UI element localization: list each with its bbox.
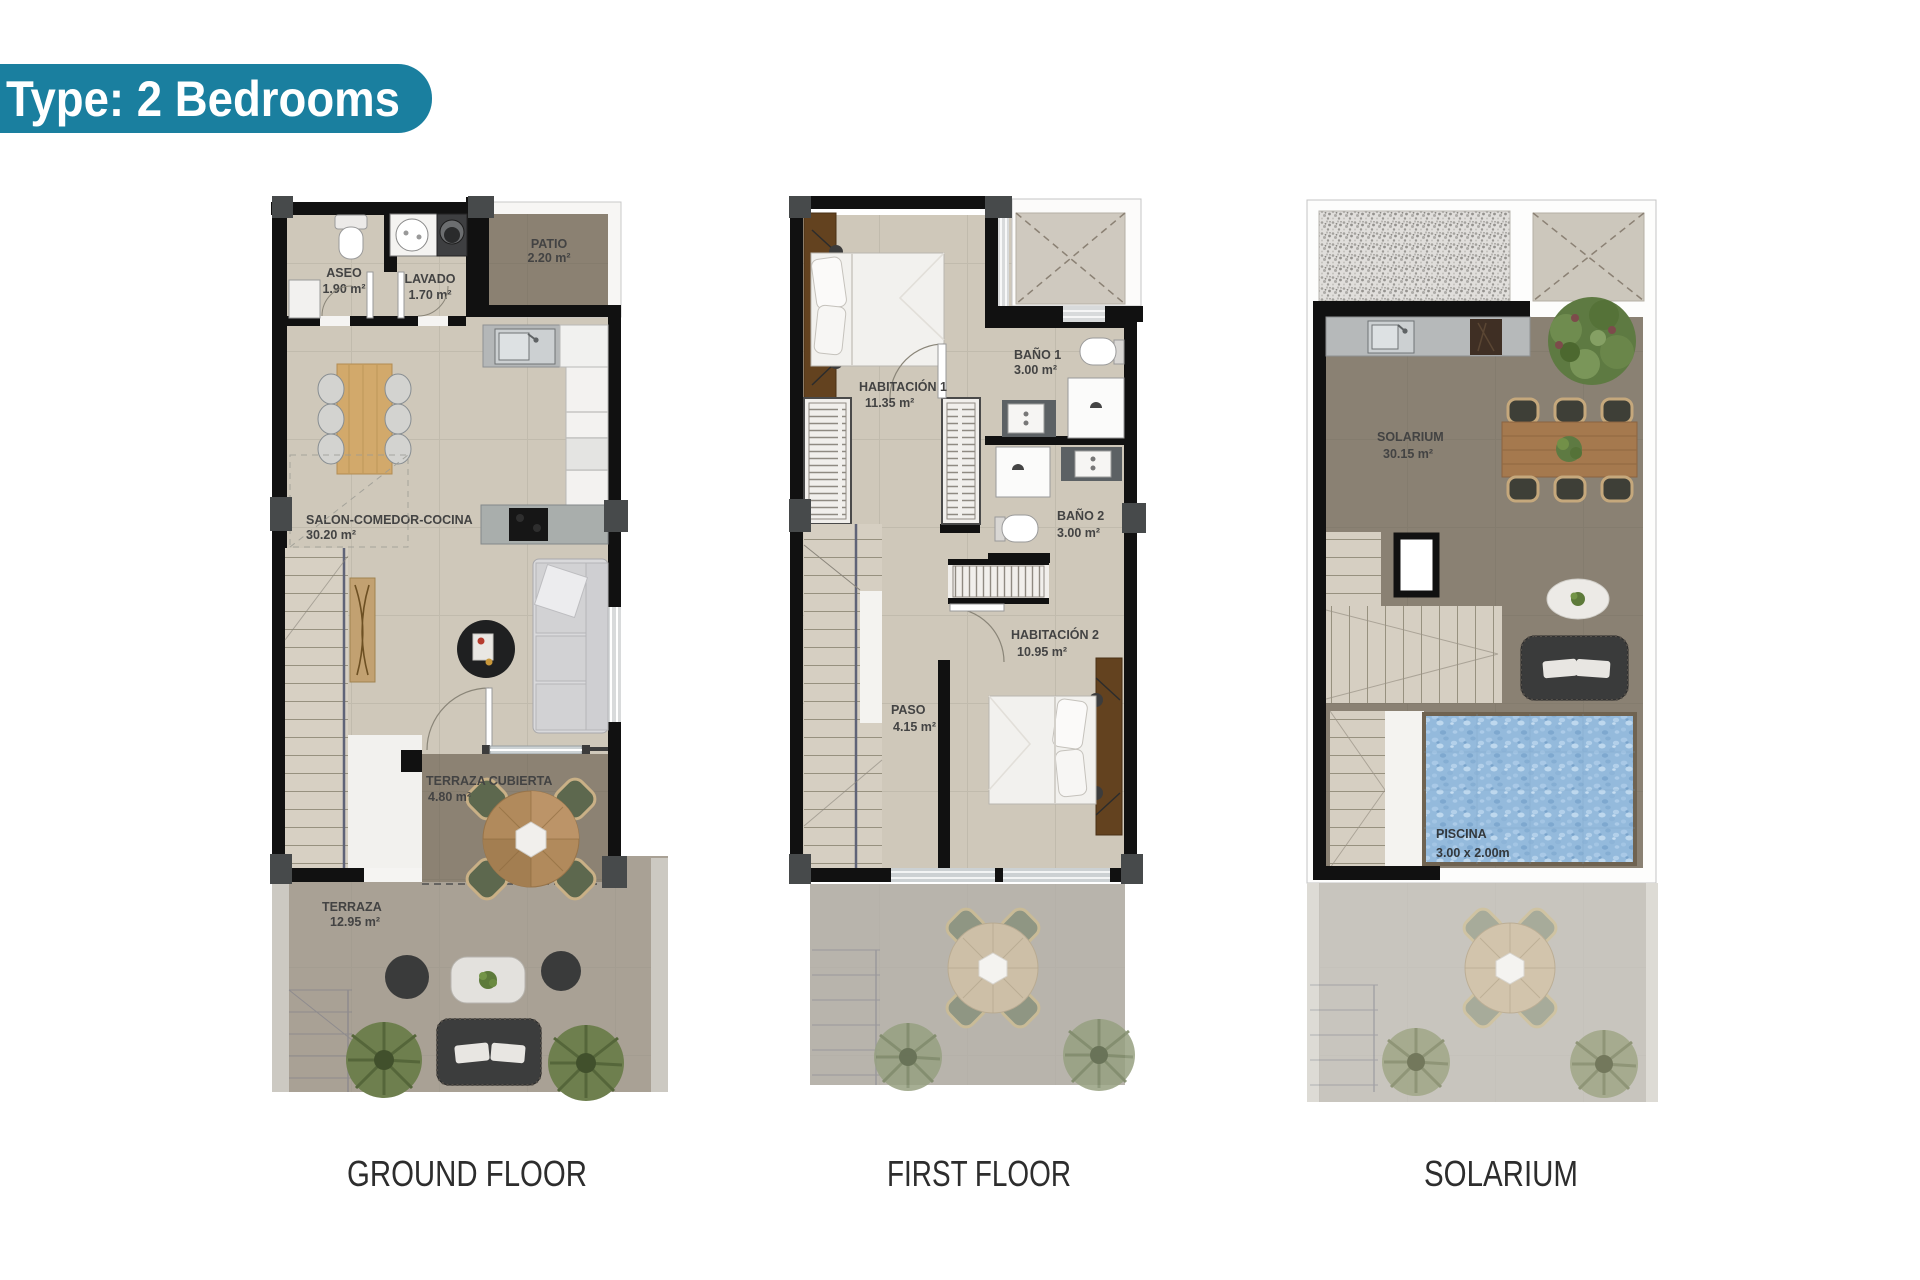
svg-text:3.00 m²: 3.00 m² <box>1057 526 1100 540</box>
svg-text:30.20 m²: 30.20 m² <box>306 528 356 542</box>
svg-text:FIRST FLOOR: FIRST FLOOR <box>887 1153 1071 1194</box>
svg-text:1.90 m²: 1.90 m² <box>322 282 365 296</box>
svg-text:BAÑO 2: BAÑO 2 <box>1057 508 1104 523</box>
svg-text:4.80 m²: 4.80 m² <box>428 790 471 804</box>
svg-text:SOLARIUM: SOLARIUM <box>1424 1153 1578 1194</box>
svg-text:2.20 m²: 2.20 m² <box>527 251 570 265</box>
svg-text:30.15 m²: 30.15 m² <box>1383 447 1433 461</box>
svg-text:SOLARIUM: SOLARIUM <box>1377 430 1444 444</box>
svg-text:TERRAZA CUBIERTA: TERRAZA CUBIERTA <box>426 774 552 788</box>
svg-text:HABITACIÓN 1: HABITACIÓN 1 <box>859 379 947 394</box>
svg-text:TERRAZA: TERRAZA <box>322 900 382 914</box>
svg-text:PATIO: PATIO <box>531 237 568 251</box>
svg-text:LAVADO: LAVADO <box>405 272 456 286</box>
svg-text:SALON-COMEDOR-COCINA: SALON-COMEDOR-COCINA <box>306 513 473 527</box>
svg-text:3.00 m²: 3.00 m² <box>1014 363 1057 377</box>
svg-text:HABITACIÓN 2: HABITACIÓN 2 <box>1011 627 1099 642</box>
svg-text:3.00 x 2.00m: 3.00 x 2.00m <box>1436 846 1510 860</box>
svg-text:Type: 2 Bedrooms: Type: 2 Bedrooms <box>6 71 400 127</box>
svg-text:11.35 m²: 11.35 m² <box>865 396 914 410</box>
svg-text:4.15 m²: 4.15 m² <box>893 720 936 734</box>
svg-text:12.95 m²: 12.95 m² <box>330 915 380 929</box>
svg-text:BAÑO 1: BAÑO 1 <box>1014 347 1061 362</box>
svg-text:PASO: PASO <box>891 703 926 717</box>
svg-text:ASEO: ASEO <box>326 266 362 280</box>
svg-text:GROUND FLOOR: GROUND FLOOR <box>347 1153 587 1194</box>
svg-text:PISCINA: PISCINA <box>1436 827 1487 841</box>
svg-text:10.95 m²: 10.95 m² <box>1017 645 1067 659</box>
